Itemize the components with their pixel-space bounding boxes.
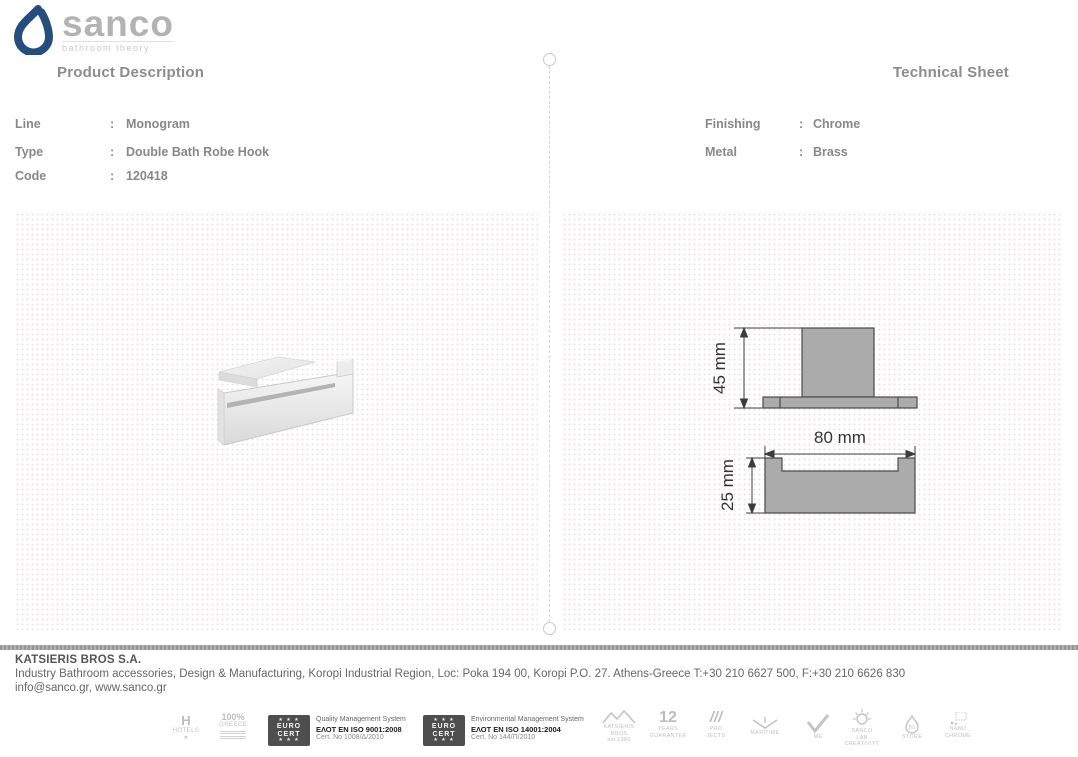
lightbulb-glyph xyxy=(850,708,874,728)
iso-9001-text: Quality Management System ΕΛΟΤ EN ISO 90… xyxy=(316,716,406,742)
projects-icon: /// PRO JECTS xyxy=(698,710,734,739)
svg-text:BS: BS xyxy=(909,725,916,731)
sanco-lab-icon: SANCO LAB CREATIVITY xyxy=(840,708,884,748)
dim-80mm-label: 80 mm xyxy=(814,428,866,447)
field-metal-colon: : xyxy=(799,145,803,159)
field-type: Type : Double Bath Robe Hook xyxy=(15,145,415,161)
maritime-icon: MARITIME xyxy=(740,716,790,737)
field-type-label: Type xyxy=(15,145,43,159)
field-metal-label: Metal xyxy=(705,145,737,159)
technical-sheet-title: Technical Sheet xyxy=(893,64,1009,81)
brand-name: sanco xyxy=(62,5,174,43)
sanco-drop-icon xyxy=(12,5,54,55)
field-line-colon: : xyxy=(110,117,114,131)
field-line: Line : Monogram xyxy=(15,117,415,133)
sanco-logo: sanco bathroom theory xyxy=(12,5,174,55)
iso-14001-text: Environmental Management System ΕΛΟΤ EN … xyxy=(471,716,584,742)
technical-drawing-panel: 45 mm 80 mm 25 mm xyxy=(562,212,1062,630)
nano-dots-glyph xyxy=(948,712,968,726)
field-finishing-colon: : xyxy=(799,117,803,131)
footer-contacts: info@sanco.gr, www.sanco.gr xyxy=(15,682,167,694)
product-image-panel xyxy=(15,212,538,630)
field-finishing-label: Finishing xyxy=(705,117,761,131)
dim-25mm-label: 25 mm xyxy=(718,459,737,511)
field-metal: Metal : Brass xyxy=(705,145,1005,161)
center-divider xyxy=(549,66,550,622)
divider-top-dot xyxy=(543,53,556,66)
side-view-drawing xyxy=(763,328,917,408)
me-check-icon: ME xyxy=(800,712,836,741)
field-code: Code : 120418 xyxy=(15,169,415,185)
dimension-drawings: 45 mm 80 mm 25 mm xyxy=(562,212,1062,630)
12-years-guarantee-icon: 12 YEARS GUARANTEE xyxy=(648,710,688,739)
field-line-value: Monogram xyxy=(126,117,190,131)
field-line-label: Line xyxy=(15,117,41,131)
field-code-value: 120418 xyxy=(126,169,168,183)
footer-company-name: KATSIERIS BROS S.A. xyxy=(15,654,141,666)
field-metal-value: Brass xyxy=(813,145,848,159)
mountains-glyph xyxy=(602,710,636,724)
droplet-glyph: BS xyxy=(903,714,921,734)
field-finishing-value: Chrome xyxy=(813,117,860,131)
product-description-title: Product Description xyxy=(57,64,204,81)
nano-icon: NANO CHROME xyxy=(936,712,980,739)
product-render xyxy=(15,212,538,630)
field-code-label: Code xyxy=(15,169,46,183)
field-finishing: Finishing : Chrome xyxy=(705,117,1005,133)
eurocert-environment-badge: ★ ★ ★ EURO CERT ★ ★ ★ xyxy=(423,715,465,746)
footer-address: Industry Bathroom accessories, Design & … xyxy=(15,668,905,680)
field-type-value: Double Bath Robe Hook xyxy=(126,145,269,159)
divider-bottom-dot xyxy=(543,622,556,635)
eurocert-quality-badge: ★ ★ ★ EURO CERT ★ ★ ★ xyxy=(268,715,310,746)
front-view-shape xyxy=(765,458,915,513)
check-glyph xyxy=(805,712,831,734)
field-code-colon: : xyxy=(110,169,114,183)
hotels-icon: H HOTELS ★ xyxy=(166,714,206,742)
certification-strip: H HOTELS ★ 100% GREECE ★ ★ ★ EURO CERT ★… xyxy=(0,706,1078,756)
bs-store-icon: BS STORE xyxy=(892,714,932,741)
greece-100-icon: 100% GREECE xyxy=(211,712,255,739)
field-type-colon: : xyxy=(110,145,114,159)
footer-separator-bar xyxy=(0,645,1078,650)
dim-45mm-label: 45 mm xyxy=(710,342,729,394)
katsieris-mountains-icon: KATSIERIS BROS est.1980 xyxy=(596,710,642,744)
product-sheet-page: sanco bathroom theory Product Descriptio… xyxy=(0,0,1078,757)
maritime-chevron-glyph xyxy=(752,716,778,730)
